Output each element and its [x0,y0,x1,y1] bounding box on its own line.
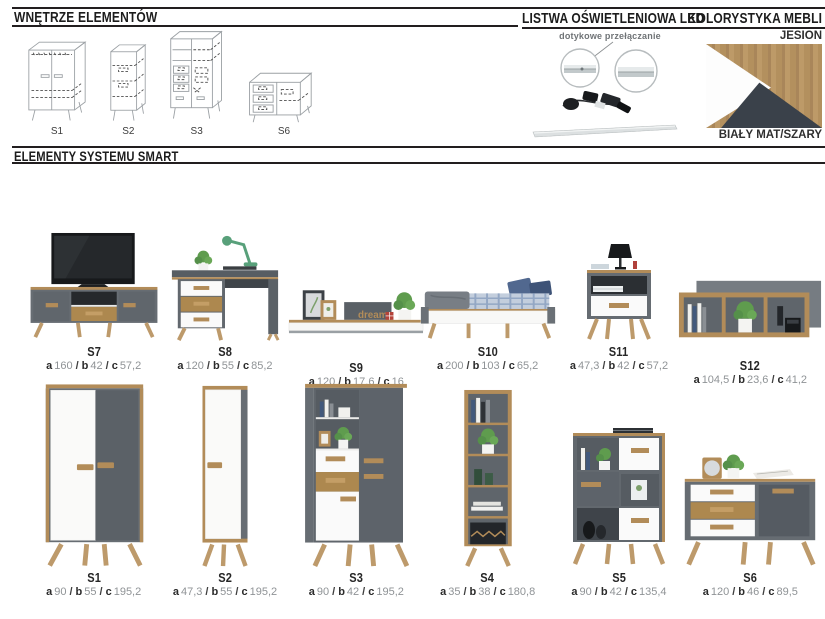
product-code: S6 [742,571,758,585]
tall-cabinet-illustration [303,380,409,568]
tv-stand-illustration [23,230,165,342]
product-code: S1 [86,571,102,585]
product-card-s7: S7 a160/b42/c57,2 [28,222,159,388]
interior-label: S3 [191,126,203,137]
product-card-s12: S12 a104,5/b23,6/c41,2 [685,222,816,388]
product-dims: a200/b103/c65,2 [437,360,538,372]
bookcase-drawers-illustration [569,428,669,568]
product-card-s11: S11 a47,3/b42/c57,2 [553,222,684,388]
product-dims: a120/b55/c85,2 [177,360,272,372]
product-code: S3 [348,571,364,585]
product-code: S10 [476,345,500,359]
wardrobe-illustration [38,382,150,568]
product-card-s9: dream S9 a120/b17,6/c16 [291,222,422,388]
product-card-s10: S10 a200/b103/c65,2 [422,222,553,388]
product-photo-s7 [23,222,165,342]
product-card-s1: S1 a90/b55/c195,2 [28,382,159,598]
product-photo-s9: dream [287,222,425,342]
product-dims: a90/b55/c195,2 [46,586,141,598]
nightstand-illustration [579,242,659,342]
product-dims: a35/b38/c180,8 [440,586,535,598]
product-code: S4 [479,571,495,585]
products-row-2: S1 a90/b55/c195,2 S2 a47,3/b55/c195,2 [28,382,816,598]
dresser-s6-wireframe-icon [244,66,324,124]
product-photo-s2 [194,382,256,568]
narrow-bookcase-illustration [459,388,517,568]
product-photo-s12 [677,222,823,342]
narrow-wardrobe-illustration [194,382,256,568]
chest-illustration [677,454,823,568]
wall-shelf-illustration: dream [287,278,425,342]
product-code: S7 [86,345,102,359]
product-code: S12 [738,359,762,373]
product-dims: a47,3/b42/c57,2 [570,360,668,372]
product-code: S11 [607,345,630,359]
product-dims: a120/b46/c89,5 [703,586,798,598]
svg-text:dream: dream [358,310,388,321]
color-swatch [706,44,822,128]
products-row-1: S7 a160/b42/c57,2 [28,222,816,388]
product-photo-s5 [569,382,669,568]
product-code: S5 [611,571,627,585]
cabinet-s2-wireframe-icon [107,38,149,124]
product-photo-s1 [38,382,150,568]
product-card-s3: S3 a90/b42/c195,2 [291,382,422,598]
bed-illustration [415,272,561,342]
section-title-interiors: WNĘTRZE ELEMENTÓW [14,9,193,26]
cube-shelf-illustration [677,280,823,342]
interiors-drawings: S1 S2 [24,28,324,137]
product-code: S9 [348,361,364,375]
interior-label: S6 [278,126,290,137]
interior-label: S2 [122,126,134,137]
product-dims: a90/b42/c195,2 [309,586,404,598]
section-title-colors: KOLORYSTYKA MEBLI [640,10,822,27]
desk-illustration [166,232,284,342]
product-card-s2: S2 a47,3/b55/c195,2 [159,382,290,598]
product-photo-s4 [459,382,517,568]
interior-drawing-s6: S6 [244,66,324,137]
product-photo-s11 [579,222,659,342]
catalog-page: WNĘTRZE ELEMENTÓW LISTWA OŚWIETLENIOWA L… [0,0,825,619]
color-label-wood: JESION [700,30,822,42]
product-photo-s6 [677,382,823,568]
interior-label: S1 [51,126,63,137]
wardrobe-s1-wireframe-icon [24,36,90,124]
interior-drawing-s1: S1 [24,36,90,137]
interior-drawing-s2: S2 [107,38,149,137]
product-card-s5: S5 a90/b42/c135,4 [553,382,684,598]
led-strip-photo [525,40,695,142]
product-dims: a160/b42/c57,2 [46,360,141,372]
product-photo-s10 [415,222,561,342]
interior-drawing-s3: S3 [167,28,227,137]
product-card-s8: S8 a120/b55/c85,2 [159,222,290,388]
product-card-s6: S6 a120/b46/c89,5 [685,382,816,598]
product-card-s4: S4 a35/b38/c180,8 [422,382,553,598]
color-label-white-gray: BIAŁY MAT/SZARY [700,129,822,141]
product-dims: a47,3/b55/c195,2 [173,586,277,598]
product-photo-s8 [166,222,284,342]
right-headers-underline [522,27,825,29]
product-photo-s3 [303,382,409,568]
product-code: S2 [217,571,233,585]
cabinet-s3-wireframe-icon [167,28,227,124]
product-dims: a90/b42/c135,4 [571,586,666,598]
product-code: S8 [217,345,233,359]
elements-bar-bottom-rule [12,162,825,164]
